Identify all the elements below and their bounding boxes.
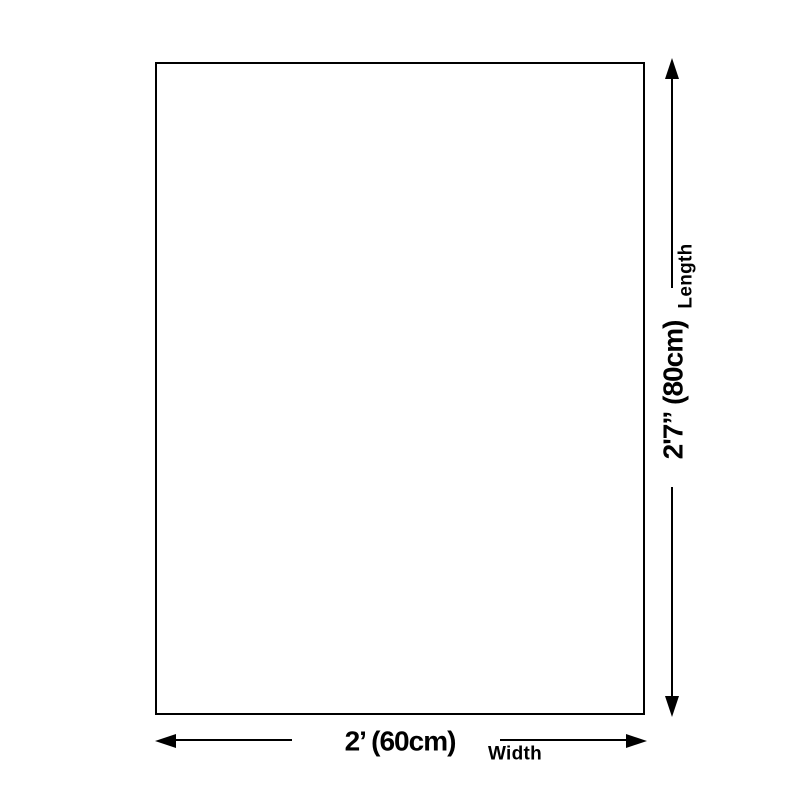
- width-dimension-line-left: [175, 739, 292, 742]
- length-label: Length: [677, 243, 698, 308]
- width-label: Width: [488, 745, 542, 766]
- arrow-down-icon: [665, 696, 679, 717]
- product-outline-rectangle: [155, 62, 645, 715]
- width-value: 2’ (60cm): [345, 727, 456, 758]
- length-value: 2'7” (80cm): [659, 321, 690, 460]
- length-dimension-line-bottom: [671, 487, 674, 699]
- arrow-left-icon: [155, 734, 176, 748]
- arrow-right-icon: [626, 734, 647, 748]
- size-dimension-diagram: Length 2'7” (80cm) 2’ (60cm) Width: [0, 0, 800, 800]
- width-dimension-line-right: [500, 739, 628, 742]
- length-dimension-line-top: [671, 76, 674, 288]
